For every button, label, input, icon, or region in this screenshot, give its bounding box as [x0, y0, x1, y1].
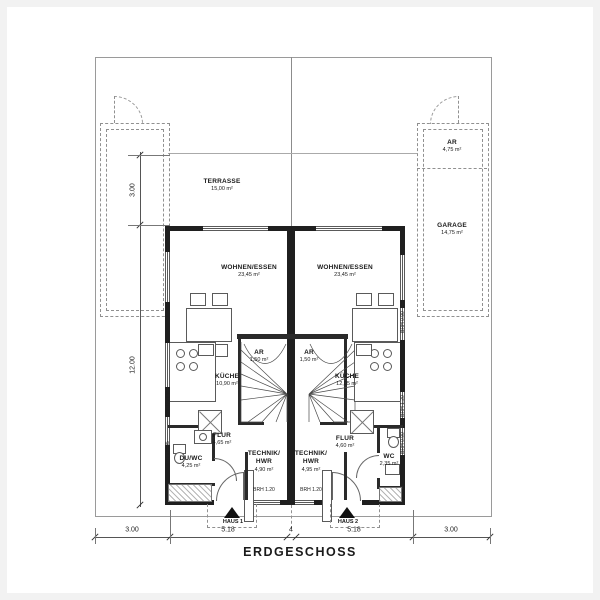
wall-bottom-seg3 [314, 500, 322, 505]
dim-bottom-5_18-right: 5.18 [347, 527, 361, 534]
stove-burner [189, 349, 198, 358]
terrace-boundary-line [168, 153, 417, 154]
stove-burner [370, 362, 379, 371]
sill-label-technik1: BRH 1.20 [253, 487, 275, 493]
chair [378, 293, 394, 306]
chair [212, 293, 228, 306]
dim-bottom-4: 4 [289, 527, 293, 534]
wall-right-seg1 [400, 226, 405, 255]
hatch-bottom-right [379, 487, 402, 502]
dim-ext [128, 225, 170, 226]
window-technik1 [254, 500, 280, 505]
room-label-kueche1: KÜCHE 10,90 m² [215, 373, 239, 389]
stove-burner [383, 362, 392, 371]
room-label-ar2: AR 1,50 m² [300, 349, 319, 365]
dim-ext [413, 510, 414, 544]
window-left-living [165, 252, 170, 302]
technik2-east-wall [344, 452, 347, 500]
stove-burner [176, 362, 185, 371]
stove-burner [176, 349, 185, 358]
dim-line-left [140, 152, 141, 507]
room-label-ar-garage: AR 4,75 m² [443, 139, 462, 155]
dining-table-haus1 [186, 308, 232, 342]
chair [356, 293, 372, 306]
room-label-wohnen2: WOHNEN/ESSEN 23,45 m² [317, 264, 373, 280]
dim-ext [128, 155, 170, 156]
floor-plan-canvas: TERRASSE 15,00 m² WOHNEN/ESSEN 23,45 m² … [0, 0, 600, 600]
sill-label-right-wc: BRH 0.90 [400, 432, 406, 454]
room-label-technik2: TECHNIK/ HWR 4,95 m² [295, 450, 327, 474]
stove-burner [383, 349, 392, 358]
dim-left-12_00: 12.00 [130, 356, 137, 374]
plot-divider-line [291, 57, 292, 227]
sill-label-left-kueche: BRH 1.35 [165, 387, 171, 409]
haus1-label: HAUS 1 [223, 519, 243, 525]
dim-bottom-3_00-right: 3.00 [444, 527, 458, 534]
washbasin-bowl [199, 433, 207, 441]
room-label-wohnen1: WOHNEN/ESSEN 23,45 m² [221, 264, 277, 280]
dim-ext [490, 528, 491, 544]
window-right-living [400, 255, 405, 300]
dim-ext [170, 510, 171, 544]
terrace-door-right [316, 226, 382, 231]
sill-label-right-essen: BRH 0.90 [400, 311, 406, 333]
entrance-arrow-haus2 [339, 507, 355, 518]
garage-left-door-leaf [114, 96, 115, 123]
wall-right-seg2 [400, 300, 405, 308]
wall-right-seg3 [400, 340, 405, 392]
wall-top-seg1 [165, 226, 203, 231]
party-wall-extension-dashed [291, 505, 292, 529]
room-label-technik1: TECHNIK/ HWR 4,90 m² [248, 450, 280, 474]
utility-box-haus2 [350, 410, 374, 434]
garage-right-inner-outline [423, 129, 483, 311]
kitchen-sink-haus1 [198, 344, 214, 356]
entrance-arrow-haus1 [224, 507, 240, 518]
room-label-flur1: FLUR 4,65 m² [213, 432, 232, 448]
room-label-wc: WC 2,35 m² [380, 453, 399, 469]
haus2-label: HAUS 2 [338, 519, 358, 525]
garage-right-door-leaf [458, 96, 459, 123]
room-label-terrasse: TERRASSE 15,00 m² [204, 178, 241, 194]
garage-left-inner-outline [106, 129, 164, 311]
garage-right-ar-divider [417, 168, 487, 169]
dining-table-haus2 [352, 308, 398, 342]
entry-door-leaf-haus2 [332, 472, 333, 500]
room-label-duwc: DU/WC 4,25 m² [179, 455, 202, 471]
dim-ext [95, 528, 96, 544]
stove-burner [189, 362, 198, 371]
dim-left-3_00: 3.00 [130, 183, 137, 197]
chair [190, 293, 206, 306]
kitchen-sink-haus2 [356, 344, 372, 356]
page-title: ERDGESCHOSS [243, 545, 357, 559]
hatch-bottom-left [168, 484, 212, 502]
room-label-flur2: FLUR 4,60 m² [336, 435, 355, 451]
wall-left-seg2 [165, 302, 170, 343]
wc-west-wall-upper [377, 425, 380, 453]
terrace-door-left [203, 226, 268, 231]
sill-label-right-kueche: BRH 1.20 [400, 395, 406, 417]
toilet-bowl-wc [388, 436, 399, 448]
room-label-kueche2: KÜCHE 12,05 m² [335, 373, 359, 389]
sill-label-left-duwc: BRH 1.35 [165, 441, 171, 463]
dim-bottom-3_00-left: 3.00 [125, 527, 139, 534]
dim-bottom-5_18-left: 5.18 [221, 527, 235, 534]
room-label-garage: GARAGE 14,75 m² [437, 222, 467, 238]
sill-label-technik2: BRH 1.20 [300, 487, 322, 493]
room-label-ar1: AR 1,50 m² [250, 349, 269, 365]
wall-left-seg1 [165, 226, 170, 252]
